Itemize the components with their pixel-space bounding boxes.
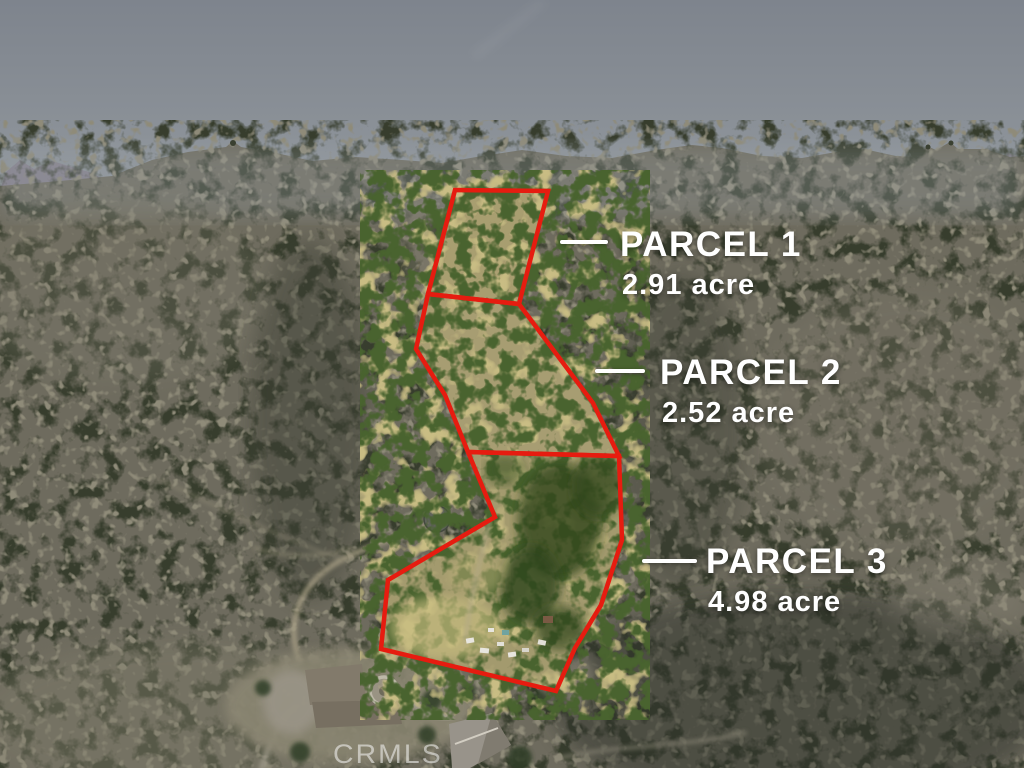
parcel-2-leader-line	[595, 369, 645, 373]
clearing-right	[890, 565, 1024, 635]
parcel-3-label: PARCEL 3 4.98 acre	[706, 544, 888, 617]
aerial-parcel-photo: PARCEL 1 2.91 acre PARCEL 2 2.52 acre PA…	[0, 0, 1024, 768]
parcel-3-acreage: 4.98 acre	[708, 588, 888, 617]
parcel-2-label: PARCEL 2 2.52 acre	[660, 355, 842, 428]
aerial-scene	[0, 0, 1024, 768]
parcel-2-name: PARCEL 2	[660, 355, 842, 390]
parcel-1-label: PARCEL 1 2.91 acre	[620, 227, 802, 300]
parcel-1-leader-line	[560, 240, 608, 244]
driveway-island	[379, 686, 389, 696]
crmls-watermark: CRMLS	[333, 739, 443, 768]
parcel-2-acreage: 2.52 acre	[662, 399, 842, 428]
main-house-roof	[305, 664, 366, 705]
parcel-1-name: PARCEL 1	[620, 227, 802, 262]
water-tank	[424, 506, 450, 532]
parcel-1-acreage: 2.91 acre	[622, 271, 802, 300]
parcel-3-leader-line	[642, 559, 697, 563]
parcel-3-name: PARCEL 3	[706, 544, 888, 579]
